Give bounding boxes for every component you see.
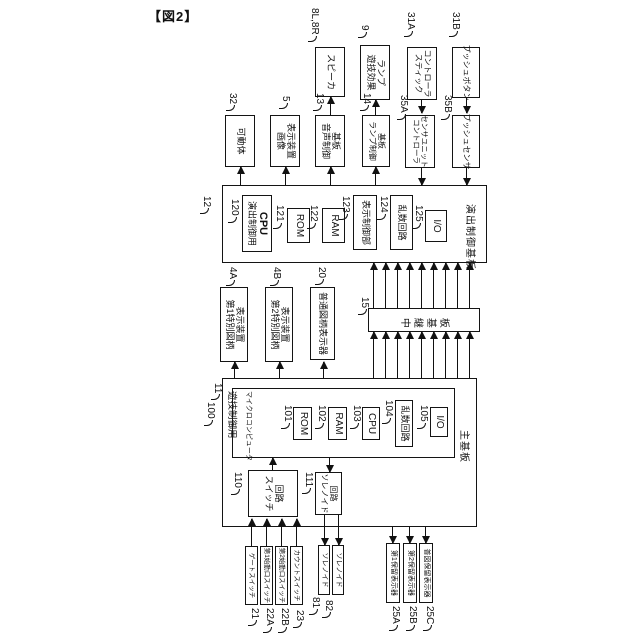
ref-31A: 31A <box>404 12 416 37</box>
arrow-circuit-to-solenoid-81 <box>324 515 325 545</box>
push-sensor-box: プッシュセンサ <box>452 115 480 168</box>
arrow-first-start-to-circuit <box>266 519 267 546</box>
arrow-main-to-relay <box>433 332 434 378</box>
main-cpu-box: CPU <box>362 407 380 440</box>
ref-81: 81 <box>309 597 321 615</box>
ref-111: 111 <box>302 472 314 494</box>
ref-25A: 25A <box>389 606 401 631</box>
effect-control-board-name: 演出制御基板 <box>464 204 479 270</box>
second-start-switch-box: 第2始動口スイッチ <box>275 546 288 605</box>
normal-hold-display-box: 普図保留表示器 <box>419 543 433 603</box>
arrow-sound-to-speaker <box>330 97 331 115</box>
arrow-main-to-relay <box>421 332 422 378</box>
first-start-switch-box: 第1始動口スイッチ <box>260 546 273 605</box>
arrow-main-to-relay <box>397 332 398 378</box>
normal-symbol-display-box: 普通図柄表示器 <box>310 287 335 360</box>
ref-103: 103 <box>350 405 362 429</box>
ref-22A: 22A <box>263 608 275 633</box>
count-switch-box: カウントスイッチ <box>290 546 303 605</box>
block-diagram: 演出制御基板 主基板 板基継中 スピーカ ランプ 遊技効果 コントローラ スティ… <box>190 0 490 640</box>
speaker-box: スピーカ <box>315 47 345 97</box>
display-control-unit-box: 表示制御部 <box>353 195 377 250</box>
arrow-micom-to-solenoidcircuit <box>329 458 330 472</box>
arrow-effect-to-image <box>285 167 286 185</box>
arrow-circuit-to-solenoid-82 <box>338 515 339 545</box>
arrow-main-to-relay <box>445 332 446 378</box>
ref-35A: 35A <box>397 95 409 120</box>
main-board-name: 主基板 <box>458 430 473 463</box>
arrow-relay-to-effect <box>433 263 434 308</box>
ref-8L8R: 8L,8R <box>308 8 320 42</box>
main-rom-box: ROM <box>293 407 312 440</box>
ref-14: 14 <box>360 93 372 111</box>
solenoid-81-box: ソレノイド <box>318 545 330 595</box>
ref-31B: 31B <box>449 12 461 37</box>
arrow-main-to-20 <box>323 362 324 378</box>
ref-121: 121 <box>273 205 285 229</box>
ref-104: 104 <box>382 400 394 424</box>
arrow-relay-to-effect <box>397 263 398 308</box>
arrow-main-to-relay <box>373 332 374 378</box>
arrow-relay-to-effect <box>469 263 470 308</box>
arrow-stick-to-sensor <box>421 100 422 113</box>
ref-122: 122 <box>307 205 319 229</box>
solenoid-82-box: ソレノイド <box>332 545 344 595</box>
ref-9: 9 <box>358 25 370 38</box>
first-special-symbol-display-box: 表示装置 第1特別図柄 <box>220 287 248 362</box>
ref-124: 124 <box>377 196 389 220</box>
ref-4A: 4A <box>226 267 238 286</box>
arrow-effect-to-lampboard <box>375 167 376 185</box>
ref-25B: 25B <box>406 606 418 631</box>
arrow-pushsensor-to-effect <box>466 168 467 185</box>
lamp-control-board-box: 基板 ランプ制御 <box>362 115 390 167</box>
arrow-count-switch-to-circuit <box>296 519 297 546</box>
gate-switch-box: ゲートスイッチ <box>245 546 258 605</box>
ref-105: 105 <box>417 405 429 429</box>
ref-102: 102 <box>315 405 327 429</box>
ref-5: 5 <box>279 96 291 109</box>
arrow-main-to-25A <box>392 527 393 543</box>
arrow-button-to-sensor <box>466 98 467 113</box>
ref-25C: 25C <box>423 606 435 631</box>
ref-21: 21 <box>248 608 260 626</box>
ref-82: 82 <box>322 600 334 618</box>
second-special-symbol-display-box: 表示装置 第2特別図柄 <box>265 287 293 362</box>
ref-32: 32 <box>226 93 238 111</box>
arrow-gate-switch-to-circuit <box>251 519 252 546</box>
ref-120: 120 <box>228 199 240 223</box>
main-ram-box: RAM <box>328 407 347 440</box>
push-button-box: プッシュボタン <box>452 47 480 98</box>
arrow-main-to-relay <box>385 332 386 378</box>
stick-controller-box: コントローラ スティック <box>407 47 437 100</box>
second-hold-display-box: 第2保留表示器 <box>403 543 417 603</box>
main-random-circuit-box: 乱数回路 <box>395 400 413 447</box>
ref-35B: 35B <box>441 95 453 120</box>
relay-board-name: 板基継中 <box>398 315 450 326</box>
arrow-relay-to-effect <box>409 263 410 308</box>
image-display-device-box: 表示装置 画像 <box>270 115 300 167</box>
relay-board-box: 板基継中 <box>368 308 480 332</box>
effect-cpu-box: CPU 演出制御用 <box>242 195 272 252</box>
ref-20: 20 <box>315 267 327 285</box>
arrow-main-to-25C <box>425 527 426 543</box>
effect-random-circuit-box: 乱数回路 <box>390 195 413 250</box>
arrow-lampboard-to-lamp <box>375 100 376 115</box>
ref-13: 13 <box>313 93 325 111</box>
game-control-microcomputer-label: マイクロコンピュータ 遊技制御用 <box>223 391 260 461</box>
sound-control-board-box: 基板 音声制御 <box>315 115 345 167</box>
arrow-relay-to-effect <box>445 263 446 308</box>
arrow-main-to-4A <box>234 362 235 378</box>
solenoid-circuit-box: 回路 ソレノイド <box>315 472 342 515</box>
arrow-switchcircuit-to-micom <box>272 458 273 470</box>
arrow-main-to-relay <box>409 332 410 378</box>
ref-23: 23 <box>293 610 305 628</box>
arrow-effect-to-sound <box>330 167 331 185</box>
arrow-main-to-relay <box>469 332 470 378</box>
switch-circuit-box: 回路 スイッチ <box>248 470 298 517</box>
arrow-relay-to-effect <box>373 263 374 308</box>
ref-101: 101 <box>281 405 293 429</box>
ref-22B: 22B <box>278 608 290 633</box>
ref-100: 100 <box>204 402 216 426</box>
arrow-relay-to-effect <box>421 263 422 308</box>
ref-125: 125 <box>412 205 424 229</box>
effect-io-box: I/O <box>425 210 447 242</box>
ref-11: 11 <box>211 383 223 400</box>
ref-12: 12 <box>200 196 212 214</box>
arrow-main-to-relay <box>457 332 458 378</box>
game-effect-lamp-box: ランプ 遊技効果 <box>360 45 390 100</box>
arrow-relay-to-effect <box>385 263 386 308</box>
main-io-box: I/O <box>430 407 448 437</box>
ref-15: 15 <box>358 297 370 315</box>
first-hold-display-box: 第1保留表示器 <box>386 543 400 603</box>
arrow-main-to-4B <box>279 362 280 378</box>
arrow-second-start-to-circuit <box>281 519 282 546</box>
movable-body-box: 可動体 <box>225 115 255 167</box>
arrow-relay-to-effect <box>457 263 458 308</box>
arrow-main-to-25B <box>409 527 410 543</box>
arrow-sensor-to-effect <box>421 168 422 185</box>
controller-sensor-unit-box: センサユニット コントローラ <box>405 115 435 168</box>
ref-4B: 4B <box>270 267 282 286</box>
ref-110: 110 <box>231 472 243 495</box>
ref-123: 123 <box>339 196 351 220</box>
arrow-effect-to-movable <box>240 167 241 185</box>
